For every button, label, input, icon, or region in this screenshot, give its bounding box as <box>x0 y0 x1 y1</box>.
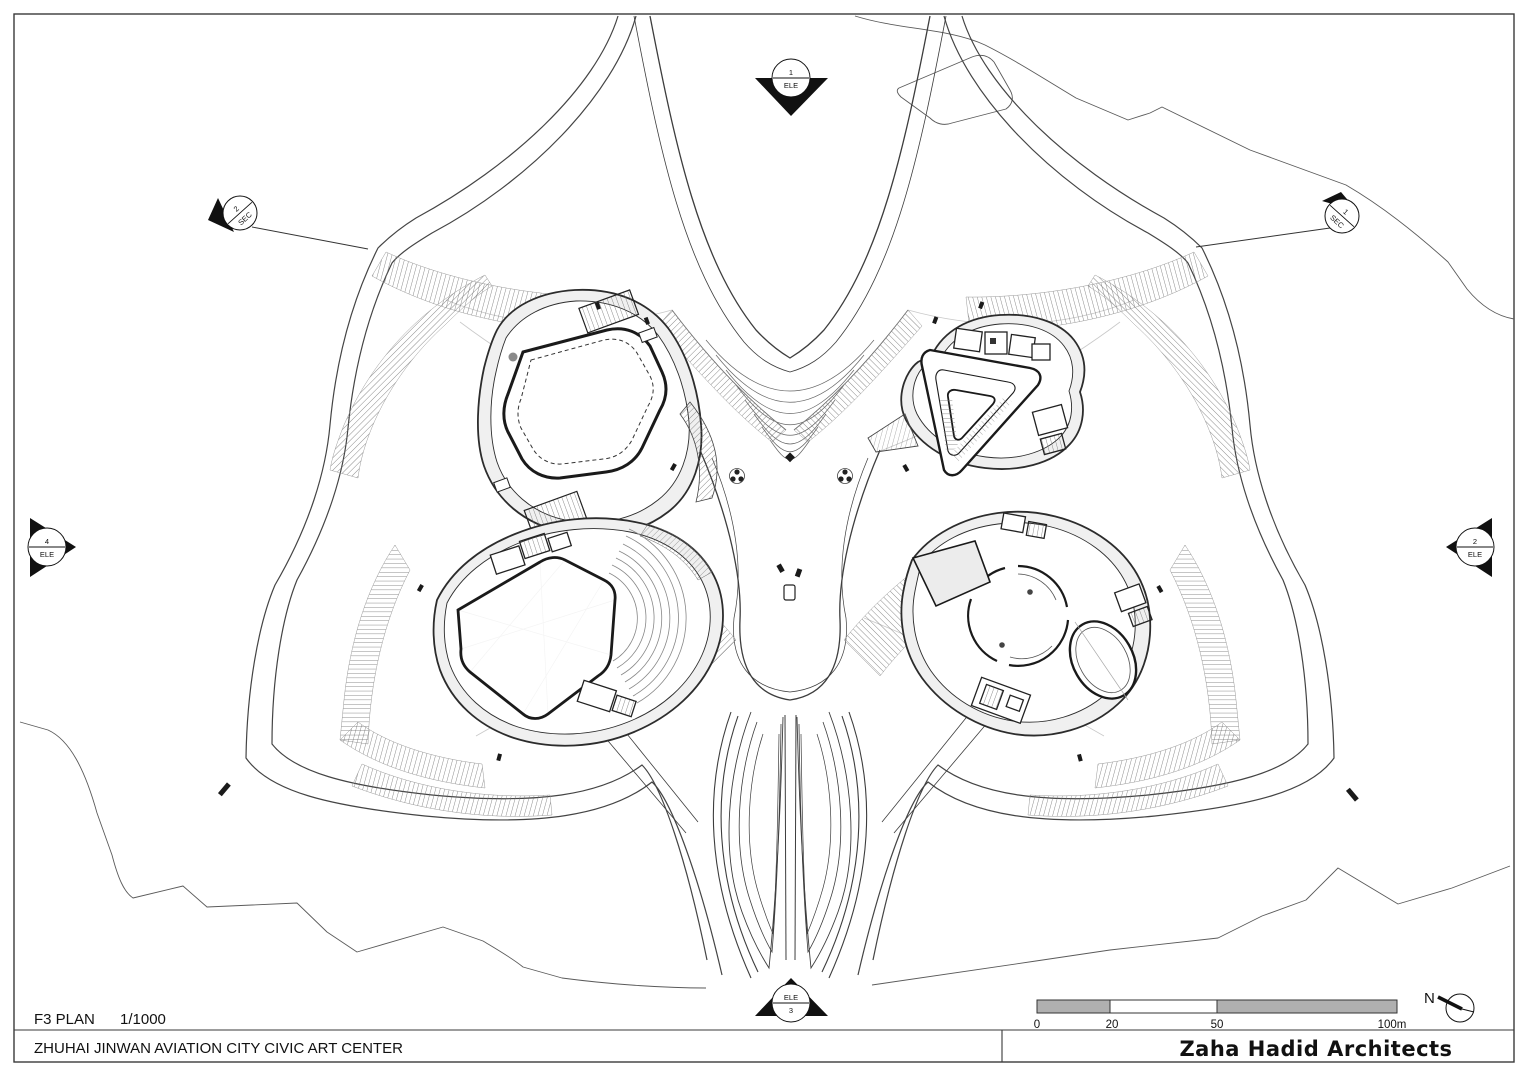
scale-tick-0: 0 <box>1034 1019 1040 1031</box>
firm-name: Zaha Hadid Architects <box>1179 1037 1452 1061</box>
marker-section-right: 1 SEC <box>1196 192 1361 247</box>
building-southwest-theatre <box>434 518 723 745</box>
bottom-tails <box>592 708 988 978</box>
marker-section-left: 2 SEC <box>208 195 368 249</box>
drawing-sheet: 1 ELE ELE 3 4 ELE 2 ELE 2 SEC <box>0 0 1528 1080</box>
project-name: ZHUHAI JINWAN AVIATION CITY CIVIC ART CE… <box>34 1040 403 1057</box>
title-block: F3 PLAN 1/1000 ZHUHAI JINWAN AVIATION CI… <box>14 1011 1514 1062</box>
marker-elevation-top-type: ELE <box>784 81 798 90</box>
marker-elevation-left: 4 ELE <box>28 518 76 577</box>
marker-elevation-top: 1 ELE <box>755 59 828 116</box>
landform-outline <box>246 16 1334 975</box>
marker-elevation-bottom-number: 3 <box>789 1006 793 1015</box>
marker-elevation-top-number: 1 <box>789 68 793 77</box>
terrace-hatch-bands <box>330 252 1250 816</box>
site-context-lines <box>20 16 1514 988</box>
plan-scale: 1/1000 <box>120 1011 166 1028</box>
sheet-frame <box>14 14 1514 1062</box>
marker-elevation-left-number: 4 <box>45 537 49 546</box>
marker-elevation-bottom: ELE 3 <box>755 978 828 1022</box>
north-arrow: N <box>1424 990 1474 1022</box>
scale-bar: 0 20 50 100m <box>1034 1000 1407 1031</box>
scale-tick-50: 50 <box>1211 1019 1224 1031</box>
floor-plan-drawing: 1 ELE ELE 3 4 ELE 2 ELE 2 SEC <box>0 0 1528 1080</box>
marker-elevation-bottom-type: ELE <box>784 993 798 1002</box>
scale-tick-20: 20 <box>1106 1019 1119 1031</box>
north-label: N <box>1424 990 1435 1007</box>
marker-elevation-right-number: 2 <box>1473 537 1477 546</box>
marker-elevation-right: 2 ELE <box>1446 518 1494 577</box>
marker-elevation-left-type: ELE <box>40 550 54 559</box>
plan-label: F3 PLAN <box>34 1011 95 1028</box>
scale-tick-100: 100m <box>1378 1019 1407 1031</box>
building-southeast-science <box>901 512 1152 736</box>
marker-elevation-right-type: ELE <box>1468 550 1482 559</box>
